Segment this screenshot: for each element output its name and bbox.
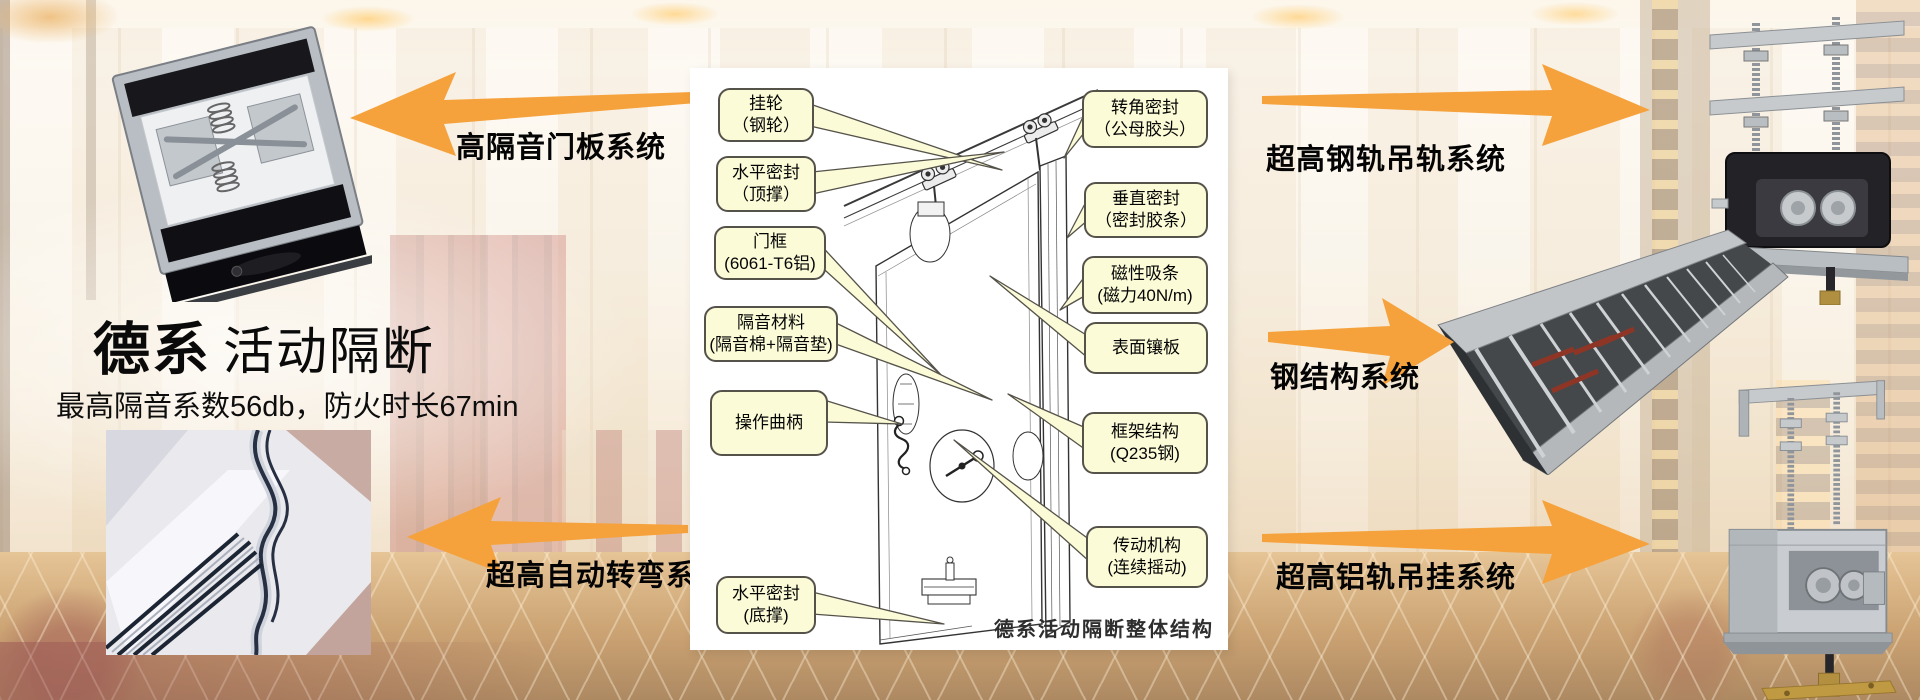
callout-right-2: 磁性吸条(磁力40N/m) (1082, 256, 1208, 314)
page-subtitle: 最高隔音系数56db，防火时长67min (56, 383, 519, 425)
callout-line: （公母胶头） (1094, 119, 1196, 141)
callout-line: 框架结构 (1111, 421, 1179, 443)
callout-right-5: 传动机构(连续摇动) (1086, 526, 1208, 588)
callout-line: (连续摇动) (1107, 557, 1186, 579)
callout-line: 操作曲柄 (735, 412, 803, 434)
callout-line: (底撑) (743, 605, 788, 627)
aluminum-track-hanger-photo (1698, 375, 1918, 700)
callout-right-3: 表面镶板 (1084, 322, 1208, 374)
callout-left-4: 操作曲柄 (710, 390, 828, 456)
callout-line: （密封胶条） (1095, 210, 1197, 232)
callout-left-2: 门框(6061-T6铝) (714, 226, 826, 280)
callout-line: 转角密封 (1111, 97, 1179, 119)
callout-line: 传动机构 (1113, 535, 1181, 557)
label-aluminum-rail-system: 超高铝轨吊挂系统 (1276, 554, 1516, 596)
callout-line: （钢轮） (732, 115, 800, 137)
callout-left-5: 水平密封(底撑) (716, 576, 816, 634)
callout-line: 水平密封 (732, 583, 800, 605)
page-title: 德系活动隔断 (93, 304, 435, 386)
callout-left-1: 水平密封（顶撑） (716, 156, 816, 212)
page-title-product: 活动隔断 (223, 323, 435, 380)
callout-right-1: 垂直密封（密封胶条） (1084, 182, 1208, 238)
callout-line: 水平密封 (732, 162, 800, 184)
callout-line: (6061-T6铝) (724, 253, 816, 275)
door-panel-top-photo (110, 10, 372, 302)
label-door-panel-system: 高隔音门板系统 (456, 124, 666, 166)
page-title-brand: 德系 (93, 318, 211, 382)
callout-left-0: 挂轮（钢轮） (718, 88, 814, 142)
label-steel-structure-system: 钢结构系统 (1270, 354, 1420, 396)
callout-left-3: 隔音材料(隔音棉+隔音垫) (704, 306, 838, 362)
callout-line: 磁性吸条 (1111, 263, 1179, 285)
callout-line: （顶撑） (732, 184, 800, 206)
callout-right-0: 转角密封（公母胶头） (1082, 90, 1208, 148)
callout-line: 隔音材料 (737, 312, 805, 334)
callout-line: 挂轮 (749, 93, 783, 115)
callout-line: 表面镶板 (1112, 337, 1180, 359)
partition-structure-diagram (842, 74, 1100, 646)
callout-line: (Q235钢) (1110, 443, 1180, 465)
structure-diagram-panel: 德系活动隔断整体结构 挂轮（钢轮）水平密封（顶撑）门框(6061-T6铝)隔音材… (690, 68, 1228, 650)
callout-right-4: 框架结构(Q235钢) (1082, 412, 1208, 474)
callout-line: 门框 (753, 231, 787, 253)
label-steel-rail-system: 超高钢轨吊轨系统 (1266, 136, 1506, 178)
callout-line: (隔音棉+隔音垫) (709, 334, 832, 356)
curved-track-photo (106, 430, 371, 655)
diagram-caption: 德系活动隔断整体结构 (994, 613, 1214, 642)
callout-line: 垂直密封 (1112, 188, 1180, 210)
callout-line: (磁力40N/m) (1097, 285, 1192, 307)
